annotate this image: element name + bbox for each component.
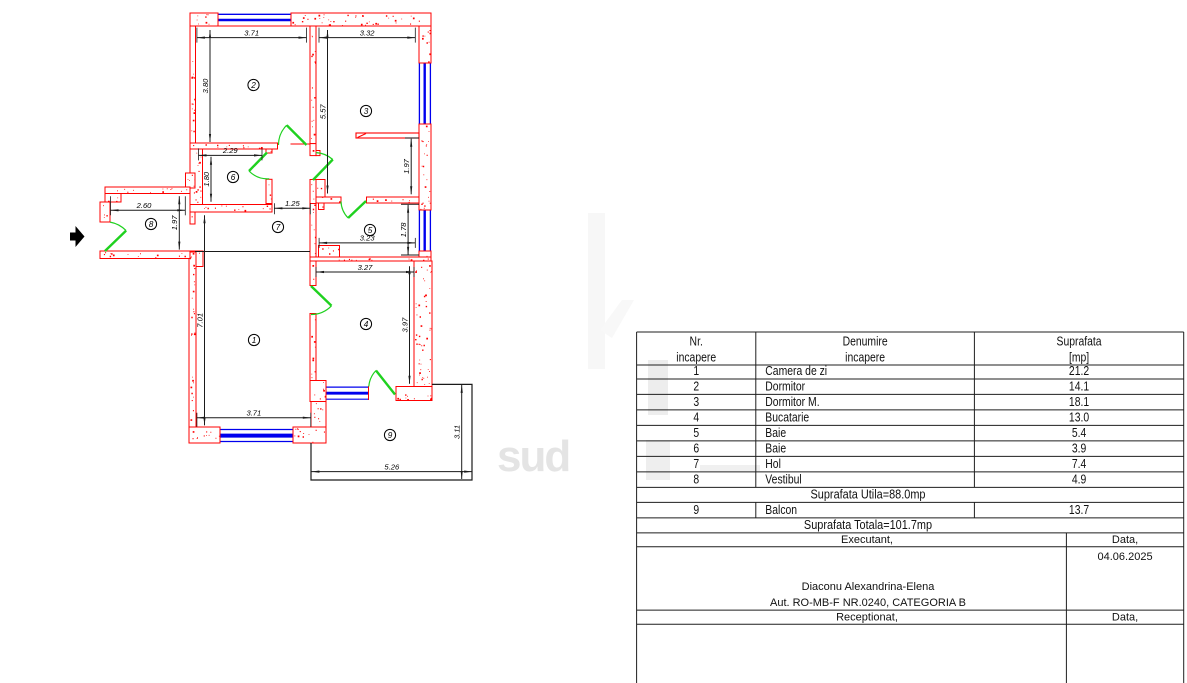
- svg-text:Suprafata Totala=101.7mp: Suprafata Totala=101.7mp: [804, 517, 932, 532]
- svg-text:sud: sud: [497, 432, 569, 481]
- svg-text:4: 4: [693, 411, 699, 425]
- svg-text:3.97: 3.97: [400, 317, 409, 333]
- svg-text:[mp]: [mp]: [1069, 350, 1089, 364]
- svg-text:Receptionat,: Receptionat,: [836, 612, 898, 624]
- svg-text:1.97: 1.97: [170, 215, 179, 231]
- svg-text:9: 9: [693, 503, 699, 517]
- svg-text:13.0: 13.0: [1069, 411, 1090, 425]
- svg-text:21.2: 21.2: [1069, 364, 1089, 378]
- svg-text:8: 8: [693, 473, 699, 487]
- svg-text:1: 1: [252, 336, 257, 345]
- svg-text:3.27: 3.27: [358, 263, 374, 272]
- svg-text:3.32: 3.32: [360, 28, 376, 37]
- svg-text:18.1: 18.1: [1069, 395, 1089, 409]
- svg-text:1.78: 1.78: [399, 222, 408, 238]
- svg-text:Dormitor M.: Dormitor M.: [765, 395, 819, 409]
- svg-text:5.4: 5.4: [1072, 426, 1087, 440]
- svg-text:Baie: Baie: [765, 442, 786, 456]
- svg-text:Data,: Data,: [1112, 612, 1138, 624]
- svg-text:3.71: 3.71: [244, 28, 259, 37]
- svg-text:3: 3: [693, 395, 699, 409]
- svg-text:Data,: Data,: [1112, 534, 1138, 546]
- svg-text:1.80: 1.80: [202, 171, 211, 187]
- svg-text:Aut. RO-MB-F NR.0240, CATEGORI: Aut. RO-MB-F NR.0240, CATEGORIA B: [770, 597, 966, 609]
- svg-text:incapere: incapere: [676, 350, 716, 364]
- svg-text:5.26: 5.26: [384, 462, 400, 471]
- svg-text:Nr.: Nr.: [690, 334, 703, 348]
- svg-text:Suprafata: Suprafata: [1057, 334, 1102, 348]
- svg-text:4: 4: [364, 320, 369, 329]
- svg-text:Vestibul: Vestibul: [765, 473, 801, 487]
- svg-text:3.9: 3.9: [1072, 442, 1086, 456]
- svg-text:5: 5: [368, 226, 373, 235]
- svg-text:Dormitor: Dormitor: [765, 380, 805, 394]
- svg-text:14.1: 14.1: [1069, 380, 1089, 394]
- svg-text:5.57: 5.57: [318, 104, 327, 120]
- svg-text:1: 1: [693, 364, 699, 378]
- svg-text:3.11: 3.11: [453, 425, 462, 439]
- svg-text:Suprafata Utila=88.0mp: Suprafata Utila=88.0mp: [811, 487, 926, 502]
- svg-text:Camera de zi: Camera de zi: [765, 364, 827, 378]
- svg-text:6: 6: [693, 442, 699, 456]
- svg-text:4.9: 4.9: [1072, 473, 1086, 487]
- svg-text:7.4: 7.4: [1072, 457, 1087, 471]
- svg-text:6: 6: [231, 173, 236, 182]
- svg-text:3.71: 3.71: [246, 409, 261, 418]
- svg-text:Executant,: Executant,: [841, 534, 893, 546]
- svg-text:2.60: 2.60: [136, 201, 153, 210]
- svg-text:04.06.2025: 04.06.2025: [1098, 551, 1153, 563]
- svg-text:1.97: 1.97: [402, 158, 411, 174]
- svg-text:3: 3: [364, 107, 369, 116]
- svg-text:Balcon: Balcon: [765, 503, 797, 517]
- svg-text:7.01: 7.01: [195, 313, 204, 328]
- svg-text:8: 8: [149, 220, 154, 229]
- svg-text:Denumire: Denumire: [843, 334, 888, 348]
- svg-text:7: 7: [276, 223, 281, 232]
- svg-text:1.25: 1.25: [285, 199, 301, 208]
- svg-text:Bucatarie: Bucatarie: [765, 411, 809, 425]
- svg-text:Baie: Baie: [765, 426, 786, 440]
- svg-text:9: 9: [388, 431, 393, 440]
- svg-text:2: 2: [250, 81, 256, 90]
- svg-text:5: 5: [693, 426, 699, 440]
- svg-text:Hol: Hol: [765, 457, 781, 471]
- svg-text:3.80: 3.80: [201, 78, 210, 94]
- svg-text:2: 2: [693, 380, 699, 394]
- svg-text:13.7: 13.7: [1069, 503, 1089, 517]
- svg-text:7: 7: [693, 457, 699, 471]
- svg-text:incapere: incapere: [845, 350, 885, 364]
- svg-text:2.29: 2.29: [222, 146, 239, 155]
- svg-text:Diaconu Alexandrina-Elena: Diaconu Alexandrina-Elena: [802, 581, 936, 593]
